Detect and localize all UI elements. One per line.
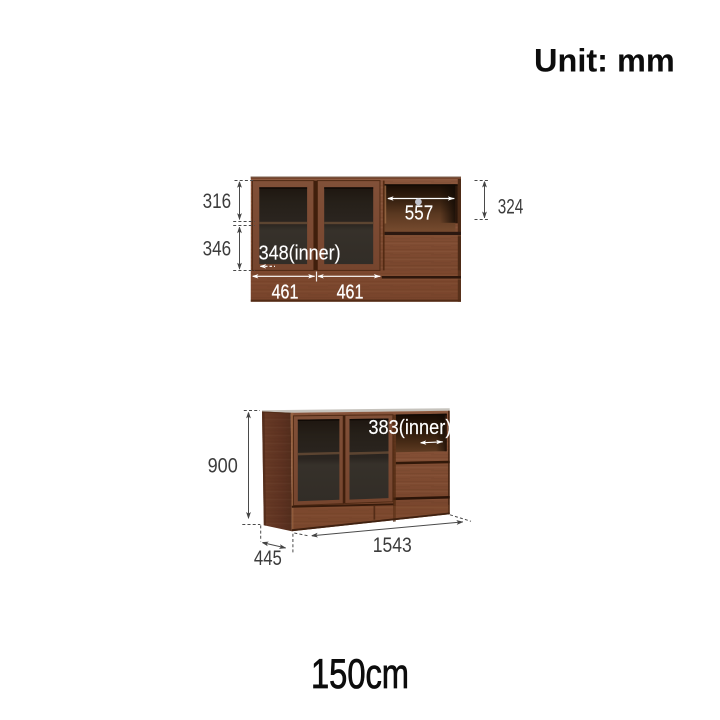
svg-text:383(inner): 383(inner)	[368, 417, 451, 439]
svg-text:150cm: 150cm	[311, 650, 409, 697]
svg-text:316: 316	[203, 190, 232, 213]
svg-text:346: 346	[203, 238, 232, 261]
svg-text:1543: 1543	[373, 534, 412, 557]
svg-text:900: 900	[208, 455, 238, 478]
svg-text:445: 445	[254, 547, 282, 570]
svg-text:461: 461	[337, 281, 364, 303]
svg-text:348(inner): 348(inner)	[259, 242, 341, 264]
svg-text:461: 461	[272, 281, 299, 303]
svg-text:324: 324	[498, 196, 524, 219]
svg-text:Unit: mm: Unit: mm	[534, 43, 675, 79]
svg-text:557: 557	[405, 202, 433, 224]
